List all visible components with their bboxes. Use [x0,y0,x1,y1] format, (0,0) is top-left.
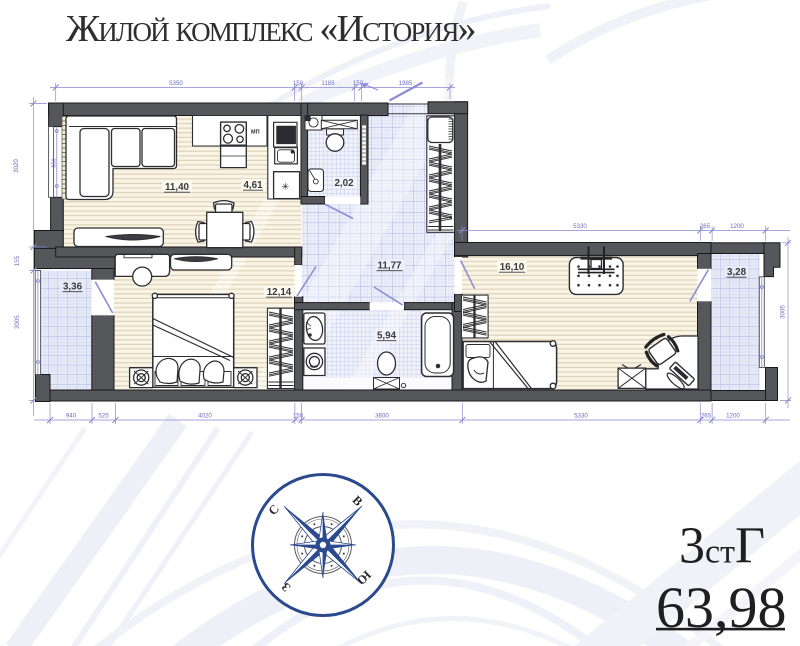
svg-text:3020: 3020 [13,159,20,173]
svg-text:12,14: 12,14 [267,287,292,298]
svg-text:1200: 1200 [730,223,744,230]
svg-text:150: 150 [353,80,364,87]
svg-text:3,36: 3,36 [63,282,83,293]
svg-text:МП: МП [251,130,260,136]
svg-text:11,40: 11,40 [165,182,190,193]
svg-text:1185: 1185 [321,80,335,87]
svg-text:265: 265 [701,413,712,420]
svg-text:3005: 3005 [780,305,787,319]
svg-text:4,61: 4,61 [243,180,263,191]
svg-text:2,02: 2,02 [334,178,354,189]
svg-text:5,94: 5,94 [377,331,397,342]
svg-text:5350: 5350 [169,80,183,87]
svg-text:940: 940 [66,413,77,420]
svg-text:525: 525 [98,413,109,420]
svg-text:11,77: 11,77 [378,261,403,272]
svg-text:150: 150 [293,80,304,87]
svg-text:Жилой комплекс «История»: Жилой комплекс «История» [66,8,475,50]
svg-text:5330: 5330 [573,223,587,230]
svg-text:850: 850 [52,158,58,167]
svg-text:150: 150 [293,413,304,420]
svg-text:3,28: 3,28 [727,267,747,278]
svg-text:4020: 4020 [198,413,212,420]
svg-text:1200: 1200 [726,413,740,420]
svg-text:265: 265 [700,223,711,230]
svg-text:3600: 3600 [375,413,389,420]
svg-text:155: 155 [14,255,21,266]
svg-text:16,10: 16,10 [500,262,525,273]
svg-text:✳: ✳ [282,182,290,192]
svg-text:1985: 1985 [399,80,413,87]
svg-text:3005: 3005 [14,315,21,329]
svg-text:5330: 5330 [574,413,588,420]
